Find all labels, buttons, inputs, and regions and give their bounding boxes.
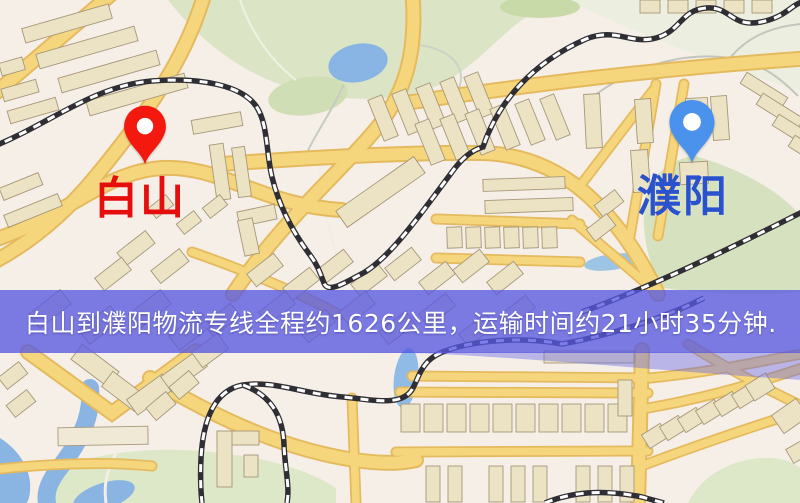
origin-pin-icon[interactable] bbox=[123, 105, 167, 166]
map-canvas[interactable]: 白山到濮阳物流专线全程约1626公里，运输时间约21小时35分钟. 白山 濮阳 bbox=[0, 0, 800, 503]
map-graphics bbox=[0, 0, 800, 503]
destination-label: 濮阳 bbox=[637, 175, 729, 219]
destination-pin-icon[interactable] bbox=[667, 100, 717, 164]
origin-label: 白山 bbox=[94, 177, 186, 221]
route-info-banner: 白山到濮阳物流专线全程约1626公里，运输时间约21小时35分钟. bbox=[0, 290, 800, 353]
route-info-text: 白山到濮阳物流专线全程约1626公里，运输时间约21小时35分钟. bbox=[25, 304, 777, 340]
